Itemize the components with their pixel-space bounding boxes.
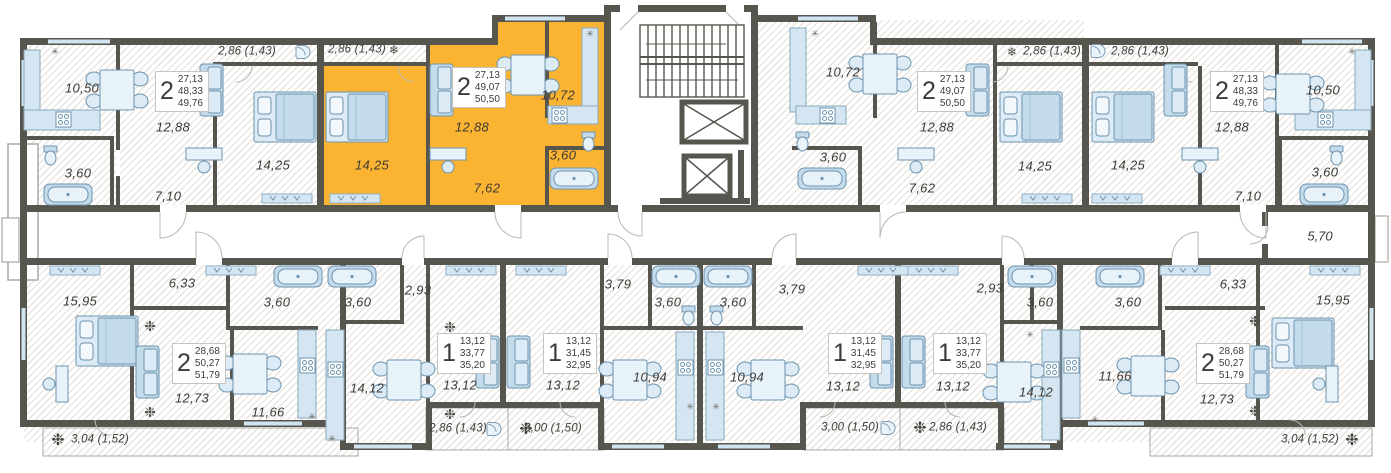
elevator-1-icon — [682, 102, 746, 142]
staircase-icon — [640, 25, 744, 97]
elevator-icons — [660, 102, 750, 204]
floor-plan-page: 10,5012,8814,257,103,60227,1348,3349,762… — [0, 0, 1391, 473]
floor-plan-canvas — [0, 0, 1391, 473]
elevator-2-icon — [684, 156, 730, 196]
